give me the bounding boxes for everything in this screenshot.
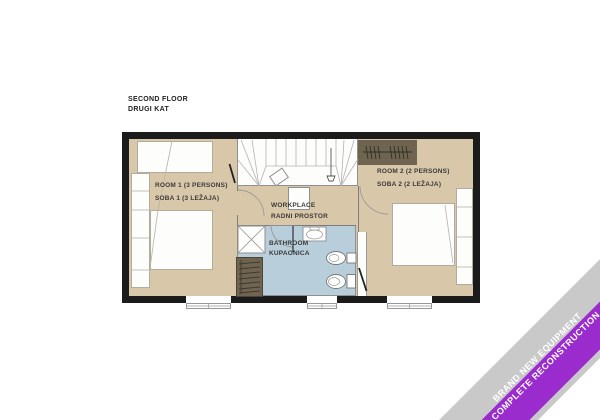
room1-label-local: SOBA 1 (3 LEŽAJA) bbox=[155, 193, 228, 206]
loft-ladder bbox=[236, 257, 263, 297]
window-3-sill bbox=[387, 303, 432, 309]
page-title-local: DRUGI KAT bbox=[128, 105, 188, 115]
bathroom-doorway-strip bbox=[357, 232, 367, 296]
room1-double-bed bbox=[150, 210, 213, 270]
room2-label-en: ROOM 2 (2 PERSONS) bbox=[377, 166, 450, 179]
room1-single-bed bbox=[137, 141, 213, 173]
workplace-label: WORKPLACE RADNI PROSTOR bbox=[271, 200, 328, 222]
page-title-en: SECOND FLOOR bbox=[128, 95, 188, 105]
bathroom-label-en: BATHROOM bbox=[269, 239, 310, 249]
room2-label-local: SOBA 2 (2 LEŽAJA) bbox=[377, 179, 450, 192]
room1-label: ROOM 1 (3 PERSONS) SOBA 1 (3 LEŽAJA) bbox=[155, 180, 228, 205]
workplace-label-local: RADNI PROSTOR bbox=[271, 211, 328, 222]
window-2-sill bbox=[307, 303, 337, 309]
page-title: SECOND FLOOR DRUGI KAT bbox=[128, 95, 188, 115]
room1-shelf-column bbox=[131, 173, 150, 288]
staircase bbox=[237, 139, 358, 186]
window-2-opening bbox=[307, 296, 337, 303]
room2-nightstand-column bbox=[456, 188, 473, 285]
window-1-sill bbox=[186, 303, 231, 309]
room1-label-en: ROOM 1 (3 PERSONS) bbox=[155, 180, 228, 193]
window-3-opening bbox=[387, 296, 432, 303]
workplace-label-en: WORKPLACE bbox=[271, 200, 328, 211]
room2-wardrobe bbox=[358, 140, 417, 165]
bathroom-label-local: KUPAONICA bbox=[269, 249, 310, 259]
window-1-opening bbox=[186, 296, 231, 303]
bathroom-label: BATHROOM KUPAONICA bbox=[269, 239, 310, 259]
room2-double-bed bbox=[392, 203, 455, 266]
floor-plan-page: SECOND FLOOR DRUGI KAT bbox=[0, 0, 600, 420]
room2-label: ROOM 2 (2 PERSONS) SOBA 2 (2 LEŽAJA) bbox=[377, 166, 450, 191]
